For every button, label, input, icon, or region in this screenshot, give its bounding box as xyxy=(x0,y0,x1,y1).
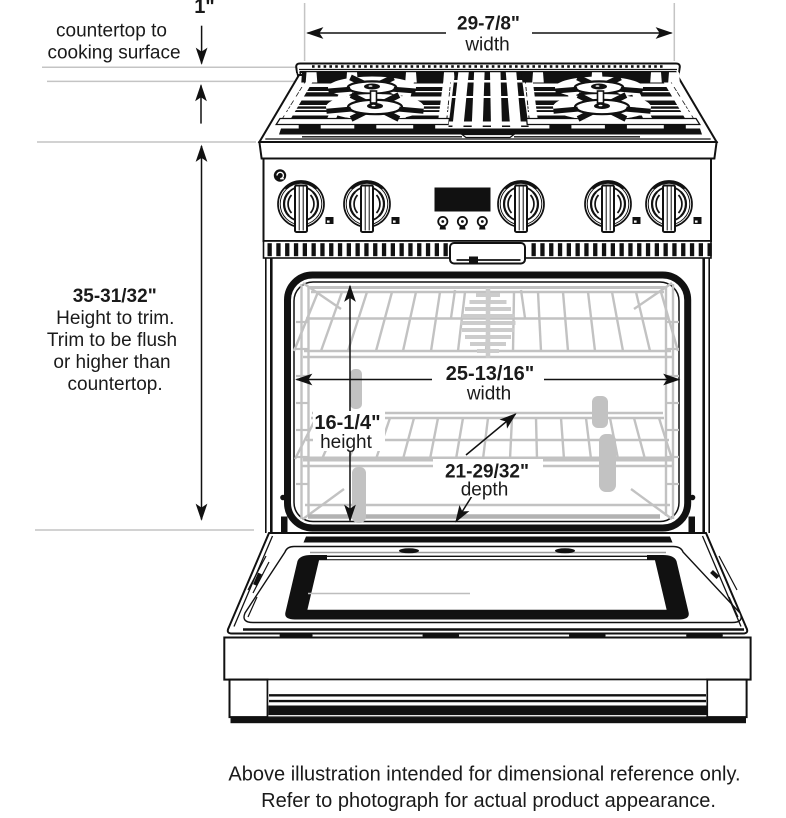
svg-text:depth: depth xyxy=(461,480,509,501)
svg-text:1": 1" xyxy=(194,0,215,18)
svg-text:width: width xyxy=(466,384,511,405)
svg-text:width: width xyxy=(464,35,509,56)
svg-text:countertop to: countertop to xyxy=(56,21,167,42)
svg-text:countertop.: countertop. xyxy=(68,374,163,395)
svg-text:cooking surface: cooking surface xyxy=(47,43,180,64)
svg-text:25-13/16": 25-13/16" xyxy=(446,363,534,385)
svg-text:35-31/32": 35-31/32" xyxy=(73,286,157,307)
svg-text:height: height xyxy=(320,432,372,453)
svg-text:or higher than: or higher than xyxy=(53,352,170,373)
svg-text:16-1/4": 16-1/4" xyxy=(314,412,380,434)
svg-text:Above illustration intended fo: Above illustration intended for dimensio… xyxy=(228,764,740,786)
svg-text:Trim to be flush: Trim to be flush xyxy=(47,330,177,351)
svg-text:Height to trim.: Height to trim. xyxy=(56,308,174,329)
svg-text:29-7/8": 29-7/8" xyxy=(457,14,520,35)
svg-text:Refer to photograph for actual: Refer to photograph for actual product a… xyxy=(261,790,716,812)
